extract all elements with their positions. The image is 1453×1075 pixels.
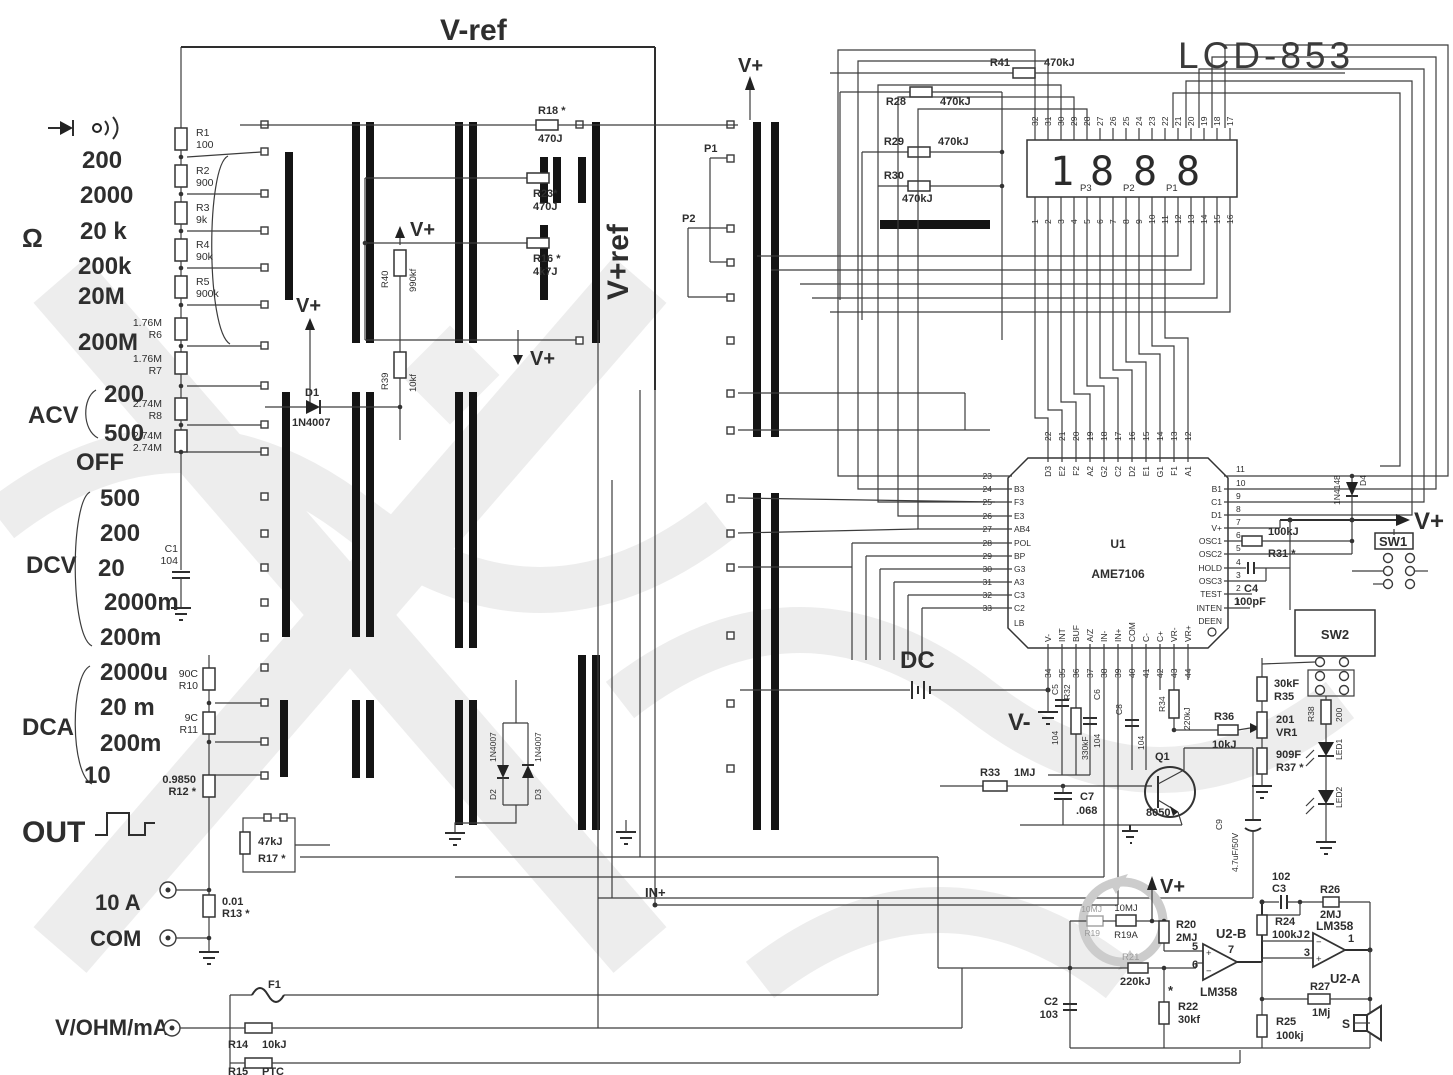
part-ref: R17 *	[258, 853, 286, 865]
pin-number: 23	[1147, 116, 1157, 126]
lcd-dp: P2	[1123, 183, 1135, 194]
pin-label: BP	[1014, 551, 1026, 561]
part-value: 30kf	[1178, 1014, 1200, 1026]
pin-label: IN-	[1099, 631, 1109, 643]
part-ref: C9	[1214, 819, 1224, 830]
svg-text:V+: V+	[410, 219, 435, 241]
part-ref: LED2	[1334, 786, 1344, 808]
part-ref: D3	[533, 789, 543, 800]
part-value: 100kJ	[1268, 526, 1299, 538]
part-value: 102	[1272, 871, 1290, 883]
part-value: 470J	[538, 133, 562, 145]
part-value: 470J	[533, 201, 557, 213]
part-value: 0.9850	[162, 774, 196, 786]
part-value: 100kj	[1276, 1030, 1304, 1042]
pin-label: OSC1	[1199, 536, 1222, 546]
range-label: 500	[100, 485, 140, 512]
u1-top-pins: 22D3 21E2 20F2 19A2 18G2 17C2 16D2 15E1 …	[1043, 431, 1193, 477]
pin-number: 21	[1173, 116, 1183, 126]
part-ref: R37 *	[1276, 762, 1304, 774]
off-label: OFF	[76, 449, 124, 476]
pin-label: IN+	[1113, 629, 1123, 643]
range-label: 2000	[80, 182, 133, 209]
range-label: 20 m	[100, 694, 155, 721]
part-value: 201	[1276, 714, 1294, 726]
lcd-dp: P1	[1166, 183, 1178, 194]
part-ref: C3	[1272, 883, 1286, 895]
pin-number: 17	[1113, 431, 1123, 441]
part-ref: C2	[1044, 996, 1058, 1008]
part-ref: C5	[1050, 684, 1060, 695]
pin-number: 3	[1304, 947, 1310, 959]
part-value: 1N4007	[292, 417, 331, 429]
pin-number: 7	[1228, 944, 1234, 956]
pin-label: HOLD	[1198, 563, 1222, 573]
part-ref: C4	[1244, 583, 1259, 595]
part-ref: C6	[1092, 689, 1102, 700]
part-ref: Q1	[1155, 751, 1170, 763]
dca-label: DCA	[22, 714, 74, 741]
pin-number: 19	[1199, 116, 1209, 126]
part-label: LM358	[1316, 919, 1354, 933]
pin-number: 18	[1099, 431, 1109, 441]
svg-text:V+: V+	[530, 348, 555, 370]
pin-label: C3	[1014, 590, 1025, 600]
vplus-up-arrow: V+	[738, 55, 763, 120]
part-ref: R12 *	[168, 786, 196, 798]
vminus-label: V-	[1008, 709, 1031, 736]
pin-label: D2	[1127, 466, 1137, 477]
vplus-label: V+	[1414, 508, 1444, 535]
pin-label: F2	[1071, 466, 1081, 476]
dc-label: DC	[900, 647, 935, 674]
led-icon	[1318, 742, 1334, 756]
part-ref: R19A	[1114, 930, 1138, 941]
pin-label: INTEN	[1197, 603, 1223, 613]
dcv-label: DCV	[26, 552, 77, 579]
pin-number: 15	[1141, 431, 1151, 441]
part-ref: C8	[1114, 704, 1124, 715]
range-label: 20 k	[80, 218, 127, 245]
part-value: 9k	[196, 214, 208, 226]
ohm-brace	[212, 156, 230, 344]
part-ref: R30	[884, 170, 904, 182]
ohm-symbol: Ω	[22, 223, 43, 253]
pin-number: 2	[1304, 929, 1310, 941]
u2a-label: U2-A	[1330, 971, 1361, 986]
part-ref: R38	[1306, 706, 1316, 722]
part-ref: R36	[1214, 711, 1234, 723]
part-value: .068	[1076, 805, 1097, 817]
svg-text:−: −	[1206, 966, 1212, 977]
part-value: 1N4007	[488, 732, 498, 762]
page-title: LCD-853	[1178, 35, 1354, 76]
part-value: 10kJ	[1212, 739, 1236, 751]
vpref-label: V+ref	[602, 223, 635, 300]
part-value: 10MJ	[1114, 903, 1137, 914]
pin-number: 17	[1225, 116, 1235, 126]
pin-number: 3	[1236, 570, 1241, 580]
part-ref: R35	[1274, 691, 1294, 703]
range-label: 200m	[100, 624, 161, 651]
pin-label: INT	[1057, 628, 1067, 642]
part-ref: D1	[305, 387, 319, 399]
pin-label: C2	[1014, 603, 1025, 613]
part-value: 990kf	[408, 268, 419, 292]
pin-label: TEST	[1200, 589, 1222, 599]
part-value: PTC	[262, 1066, 284, 1075]
pin-label: A2	[1085, 466, 1095, 477]
pin-label: C+	[1155, 631, 1165, 642]
lcd-display: LCD-853 1 8 8 8 P3 P2 P1 32 31 30 29 28 …	[1027, 35, 1354, 224]
lcd-dp: P3	[1080, 183, 1092, 194]
range-label: 10	[84, 762, 111, 789]
pin-label: D1	[1211, 510, 1222, 520]
ground-icon	[1252, 786, 1272, 798]
pin-number: 18	[1212, 116, 1222, 126]
part-value: 100kJ	[1272, 929, 1303, 941]
speaker-icon	[1354, 1006, 1381, 1040]
pin-number: 27	[983, 524, 993, 534]
part-value: 100	[196, 139, 214, 151]
part-value: 10kf	[408, 374, 419, 392]
pin-number: 29	[983, 551, 993, 561]
part-value: 1.76M	[133, 317, 162, 329]
pin-number: 13	[1169, 431, 1179, 441]
pin-number: 33	[983, 603, 993, 613]
part-ref: R41	[990, 57, 1010, 69]
part-value: 104	[1092, 734, 1102, 748]
part-ref: R18 *	[538, 105, 566, 117]
pin-label: A1	[1183, 466, 1193, 477]
pin-label: COM	[1127, 622, 1137, 642]
part-value: 8050	[1146, 807, 1170, 819]
led-icon	[1318, 790, 1334, 804]
range-label: 200m	[100, 730, 161, 757]
pin-number: 30	[983, 564, 993, 574]
part-ref: F1	[268, 979, 281, 991]
schematic-page: Ω 200 2000 20 k 200k 20M 200M ACV 200 50…	[0, 0, 1453, 1075]
part-value: 1MJ	[1014, 767, 1035, 779]
pin-number: 16	[1127, 431, 1137, 441]
part-value: 104	[1050, 731, 1060, 745]
svg-text:+: +	[1316, 954, 1322, 965]
part-ref: R7	[149, 365, 163, 377]
pin-number: 4	[1236, 557, 1241, 567]
part-value: 470kJ	[940, 96, 971, 108]
pin-number: 10	[1236, 478, 1246, 488]
pin-number: 14	[1155, 431, 1165, 441]
pin-number: 9	[1236, 491, 1241, 501]
ground-icon	[616, 832, 636, 844]
part-value: 30kF	[1274, 678, 1299, 690]
pin-label: OSC2	[1199, 549, 1222, 559]
part-ref: R22	[1178, 1001, 1198, 1013]
ground-icon	[1122, 825, 1138, 843]
p1-label: P1	[704, 143, 717, 155]
input-jacks	[160, 882, 230, 1036]
vplus-up-arrow: V+	[395, 219, 435, 245]
sw2-label: SW2	[1321, 627, 1349, 642]
svg-text:+: +	[1206, 948, 1212, 959]
part-ref: R5	[196, 276, 210, 288]
part-value: 2.74M	[133, 430, 162, 442]
pin-label: E2	[1057, 466, 1067, 477]
part-value: 200	[1334, 708, 1344, 722]
part-value: 0.01	[222, 896, 243, 908]
in-plus-label: IN+	[645, 885, 666, 900]
pin-number: 7	[1236, 517, 1241, 527]
led-rays-icon	[1306, 798, 1314, 814]
part-ref: VR1	[1276, 727, 1297, 739]
pin-label: G3	[1014, 564, 1026, 574]
svg-text:V+: V+	[738, 55, 763, 77]
ground-icon	[445, 833, 465, 845]
part-value: 470kJ	[902, 193, 933, 205]
pin-number: 27	[1095, 116, 1105, 126]
pin-label: V+	[1211, 523, 1222, 533]
part-ref: R28	[886, 96, 906, 108]
pin-number: 1	[1348, 933, 1354, 945]
pin-number: 19	[1085, 431, 1095, 441]
part-value: 220kJ	[1120, 976, 1151, 988]
pin-label: OSC3	[1199, 576, 1222, 586]
jack-com-label: COM	[90, 926, 141, 951]
part-ref: LED1	[1334, 738, 1344, 760]
wire-bundle-lcd-to-u1	[757, 209, 1230, 445]
part-ref: D4	[1358, 475, 1368, 486]
led-rays-icon	[1306, 750, 1314, 766]
part-ref: R15	[228, 1066, 248, 1075]
pin-number: 28	[983, 538, 993, 548]
pin-label: A3	[1014, 577, 1025, 587]
pin-label: G1	[1155, 466, 1165, 478]
wire-bundle-top-right	[1173, 45, 1448, 515]
pin-label: VR-	[1169, 627, 1179, 642]
range-label: 200k	[78, 253, 132, 280]
part-value: 470kJ	[938, 136, 969, 148]
part-ref: R4	[196, 239, 210, 251]
range-label: 200	[100, 520, 140, 547]
part-ref: R34	[1157, 696, 1167, 712]
jack-vohm-label: V/OHM/mA	[55, 1015, 169, 1040]
lcd-digit: 8	[1176, 149, 1200, 195]
part-value: 1Mj	[1312, 1007, 1330, 1019]
pin-number: 8	[1236, 504, 1241, 514]
pin-number: 2	[1236, 583, 1241, 593]
range-label: 20	[98, 555, 125, 582]
part-ref: R14	[228, 1039, 249, 1051]
part-ref: R25	[1276, 1016, 1296, 1028]
pin-label: C2	[1113, 466, 1123, 477]
pin-number: 6	[1192, 959, 1198, 971]
pin-number: 23	[983, 471, 993, 481]
pin-label: C1	[1211, 497, 1222, 507]
pin-label: F1	[1169, 466, 1179, 476]
pin-label: G2	[1099, 466, 1109, 478]
part-value: 100pF	[1234, 596, 1266, 608]
pin-label: F3	[1014, 497, 1024, 507]
acv-brace	[86, 390, 98, 438]
part-value: 90C	[179, 668, 199, 680]
p-connector: V+ P1 P2	[682, 55, 763, 297]
part-ref: R10	[179, 680, 198, 692]
part-value: 4.7uF/50V	[1230, 832, 1240, 872]
pin-number: 26	[983, 511, 993, 521]
range-label: 200M	[78, 329, 138, 356]
pin-number: 22	[1160, 116, 1170, 126]
part-label: LM358	[1200, 985, 1238, 999]
part-ref: R13 *	[222, 908, 250, 920]
part-value: 330kF	[1080, 736, 1090, 760]
speaker-label: S	[1342, 1017, 1350, 1031]
vref-label: V-ref	[440, 14, 508, 47]
pin-number: 12	[1183, 431, 1193, 441]
acv-label: ACV	[28, 402, 79, 429]
part-value: 104	[1136, 736, 1146, 750]
part-value: 1.76M	[133, 353, 162, 365]
part-ref: R26	[1320, 884, 1340, 896]
part-value: 10kJ	[262, 1039, 286, 1051]
pin-label: A/Z	[1085, 629, 1095, 642]
part-value: 900	[196, 177, 214, 189]
pin-label: E3	[1014, 511, 1025, 521]
pin-number: 32	[983, 590, 993, 600]
u1-ref: U1	[1110, 537, 1126, 551]
part-ref: 2.74M	[133, 442, 162, 454]
part-value: 104	[160, 555, 178, 567]
pin-label: D3	[1043, 466, 1053, 477]
pin-number: 25	[1121, 116, 1131, 126]
part-value: 103	[1040, 1009, 1058, 1021]
part-ref: R33	[980, 767, 1000, 779]
dcv-brace	[75, 492, 92, 646]
range-label: 200	[82, 147, 122, 174]
pin-number: 26	[1108, 116, 1118, 126]
part-ref: R19	[1084, 928, 1100, 938]
svg-text:V+: V+	[1160, 876, 1185, 898]
pin-number: 6	[1236, 530, 1241, 540]
part-value: 90k	[196, 251, 214, 263]
part-ref: C7	[1080, 791, 1094, 803]
part-ref: R6	[149, 329, 163, 341]
part-value: 9C	[185, 712, 199, 724]
part-ref: R29	[884, 136, 904, 148]
pin-label: AB4	[1014, 524, 1030, 534]
jack-10a-label: 10 A	[95, 890, 141, 915]
part-ref: C1	[165, 543, 179, 555]
pin-label: B3	[1014, 484, 1025, 494]
part-value: 220kJ	[1182, 707, 1192, 730]
range-label: 20M	[78, 283, 125, 310]
pin-label: E1	[1141, 466, 1151, 477]
ground-icon	[199, 952, 219, 964]
part-value: 1N4148	[1332, 475, 1342, 505]
u2b-label: U2-B	[1216, 926, 1246, 941]
out-label: OUT	[22, 816, 85, 849]
part-value: 909F	[1276, 749, 1301, 761]
part-ref: R24	[1275, 916, 1296, 928]
u1-chip: U1 AME7106 22D3 21E2 20F2 19A2 18G2 17C2…	[983, 431, 1246, 678]
part-ref: R21	[1122, 952, 1139, 963]
part-ref: R2	[196, 165, 210, 177]
pin-number: 20	[1186, 116, 1196, 126]
part-ref: R27	[1310, 981, 1330, 993]
pin-label: POL	[1014, 538, 1031, 548]
pin-number: 25	[983, 497, 993, 507]
range-label: 2000m	[104, 589, 179, 616]
diode-icon	[306, 400, 320, 414]
p2-label: P2	[682, 213, 695, 225]
part-value: 1N4007	[533, 732, 543, 762]
part-value: 4k7J	[533, 266, 557, 278]
pin-number: 5	[1192, 941, 1198, 953]
lcd-digit: 8	[1133, 149, 1157, 195]
part-ref: R20	[1176, 919, 1196, 931]
sw1-label: SW1	[1379, 534, 1407, 549]
svg-text:V+: V+	[296, 295, 321, 317]
part-ref: R39	[380, 373, 391, 390]
part-ref: R23*	[533, 188, 558, 200]
pin-number: 5	[1236, 543, 1241, 553]
part-value: 900k	[196, 288, 220, 300]
pin-label: VR+	[1183, 625, 1193, 642]
lcd-digit: 8	[1090, 149, 1114, 195]
lcd-digit: 1	[1050, 149, 1074, 195]
pin-label: BUF	[1071, 625, 1081, 642]
pin-number: 22	[1043, 431, 1053, 441]
pin-number: 24	[1134, 116, 1144, 126]
pin-number: 11	[1236, 464, 1245, 474]
part-value: 47kJ	[258, 836, 282, 848]
pin-label: LB	[1014, 618, 1025, 628]
pin-label: V-	[1043, 634, 1053, 642]
part-value: 10MJ	[1081, 904, 1102, 914]
continuity-icon	[48, 117, 118, 139]
part-value: 2.74M	[133, 398, 162, 410]
pin-label: C-	[1141, 633, 1151, 642]
part-ref: R16 *	[533, 253, 561, 265]
pin-number: 31	[983, 577, 993, 587]
part-ref: D2	[488, 789, 498, 800]
r17-block: 47kJ R17 *	[240, 814, 330, 872]
pin-number: 20	[1071, 431, 1081, 441]
pin-number: 21	[1057, 431, 1067, 441]
svg-text:−: −	[1316, 937, 1322, 948]
part-ref: R1	[196, 127, 210, 139]
u1-part: AME7106	[1091, 567, 1145, 581]
range-label: 2000u	[100, 659, 168, 686]
ground-icon	[1316, 842, 1336, 854]
part-ref: R40	[380, 271, 391, 288]
part-ref: R11	[180, 724, 199, 736]
pin-label: B1	[1212, 484, 1223, 494]
pin-number: 24	[983, 484, 993, 494]
part-ref: R32	[1062, 684, 1072, 700]
part-ref: R8	[149, 410, 163, 422]
part-ref: R3	[196, 202, 210, 214]
pin-label: DEEN	[1198, 616, 1222, 626]
star-mark: *	[1168, 983, 1174, 998]
